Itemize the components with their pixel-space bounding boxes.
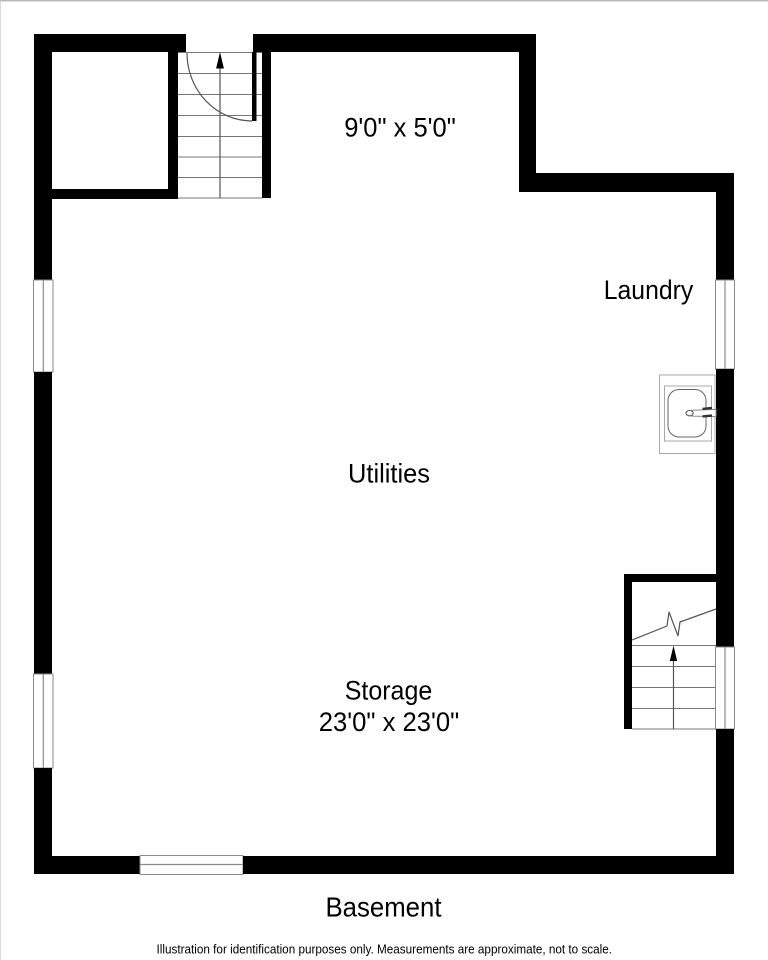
svg-text:Utilities: Utilities: [348, 459, 430, 489]
svg-text:Illustration for identificatio: Illustration for identification purposes…: [157, 943, 613, 957]
svg-text:23'0" x 23'0": 23'0" x 23'0": [319, 707, 460, 737]
svg-text:Storage: Storage: [345, 676, 433, 706]
svg-text:Basement: Basement: [326, 892, 442, 923]
svg-text:9'0" x 5'0": 9'0" x 5'0": [344, 113, 456, 143]
svg-text:Laundry: Laundry: [604, 275, 694, 305]
